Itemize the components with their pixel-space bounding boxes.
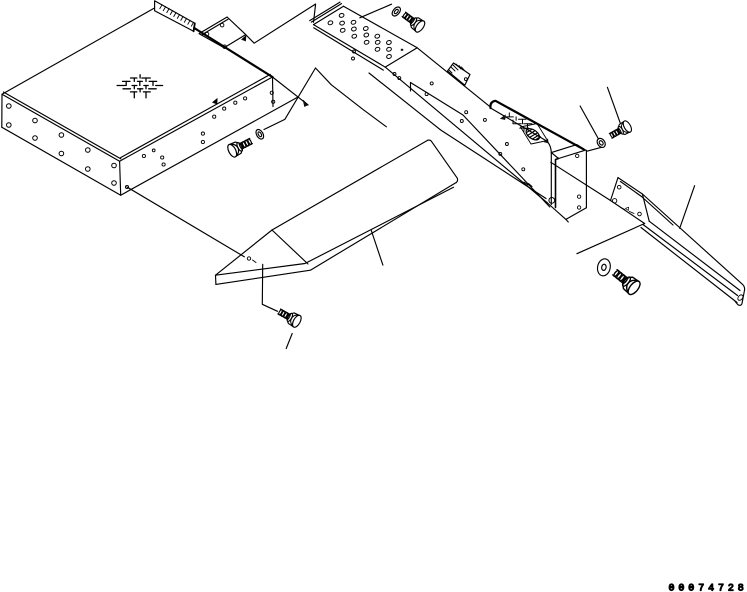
svg-text:00074728: 00074728	[669, 583, 747, 592]
